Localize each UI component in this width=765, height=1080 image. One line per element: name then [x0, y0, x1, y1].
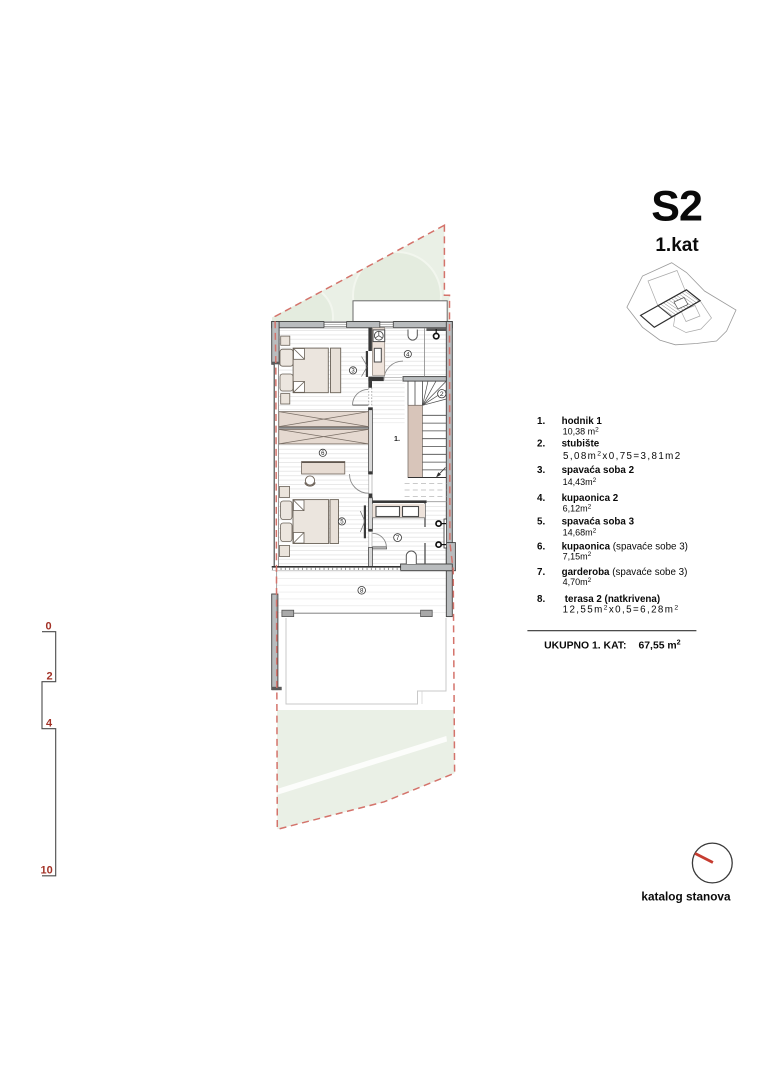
svg-text:spavaća soba 3: spavaća soba 3 [562, 516, 635, 527]
svg-text:7.: 7. [537, 567, 545, 578]
svg-text:1.: 1. [394, 434, 400, 443]
svg-text:10: 10 [41, 865, 53, 877]
svg-text:4: 4 [46, 718, 53, 730]
svg-text:8: 8 [360, 588, 364, 595]
svg-text:5.: 5. [537, 516, 545, 527]
svg-text:2: 2 [47, 671, 53, 683]
svg-text:2.: 2. [537, 439, 545, 450]
svg-text:4,70m2: 4,70m2 [563, 577, 592, 587]
svg-text:terasa 2 (natkrivena): terasa 2 (natkrivena) [565, 594, 660, 605]
svg-text:4.: 4. [537, 493, 545, 504]
svg-text:12,55m2x0,5=6,28m2: 12,55m2x0,5=6,28m2 [563, 604, 680, 615]
svg-text:1.: 1. [537, 416, 545, 427]
svg-text:67,55 m2: 67,55 m2 [639, 638, 681, 652]
svg-text:1.kat: 1.kat [655, 235, 699, 256]
svg-text:kupaonica 2: kupaonica 2 [562, 493, 619, 504]
svg-text:stubište: stubište [562, 439, 600, 450]
svg-text:8.: 8. [537, 594, 545, 605]
svg-text:5,08m2x0,75=3,81m2: 5,08m2x0,75=3,81m2 [563, 451, 682, 462]
svg-text:UKUPNO 1. KAT:: UKUPNO 1. KAT: [544, 640, 626, 651]
svg-text:3.: 3. [537, 465, 545, 476]
svg-text:7,15m2: 7,15m2 [563, 551, 592, 561]
svg-text:10,38 m2: 10,38 m2 [563, 426, 600, 436]
svg-text:0: 0 [46, 621, 52, 633]
svg-text:spavaća soba 2: spavaća soba 2 [562, 465, 635, 476]
svg-text:7: 7 [396, 535, 400, 542]
svg-text:6,12m2: 6,12m2 [563, 503, 592, 513]
svg-text:14,68m2: 14,68m2 [563, 527, 597, 537]
svg-text:14,43m2: 14,43m2 [563, 477, 597, 487]
svg-text:2: 2 [440, 391, 444, 398]
svg-text:katalog stanova: katalog stanova [641, 889, 731, 903]
svg-text:S2: S2 [651, 183, 702, 231]
svg-text:6.: 6. [537, 541, 545, 552]
